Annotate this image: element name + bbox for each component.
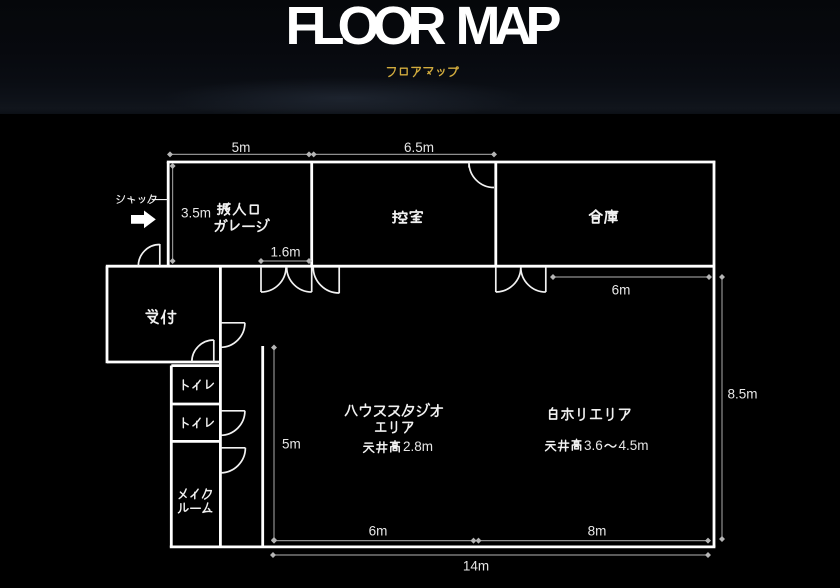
- svg-text:4.5m: 4.5m: [619, 438, 649, 453]
- svg-text:1.6m: 1.6m: [270, 245, 300, 260]
- svg-text:8m: 8m: [588, 524, 607, 539]
- svg-text:6m: 6m: [612, 283, 631, 298]
- svg-text:3.6: 3.6: [584, 438, 603, 453]
- svg-text:3.5m: 3.5m: [181, 206, 211, 221]
- svg-text:14m: 14m: [463, 559, 489, 574]
- svg-text:8.5m: 8.5m: [728, 387, 758, 402]
- svg-text:5m: 5m: [282, 437, 301, 452]
- svg-text:6.5m: 6.5m: [404, 140, 434, 155]
- svg-text:2.8m: 2.8m: [403, 439, 433, 454]
- svg-text:5m: 5m: [232, 140, 251, 155]
- svg-text:6m: 6m: [369, 524, 388, 539]
